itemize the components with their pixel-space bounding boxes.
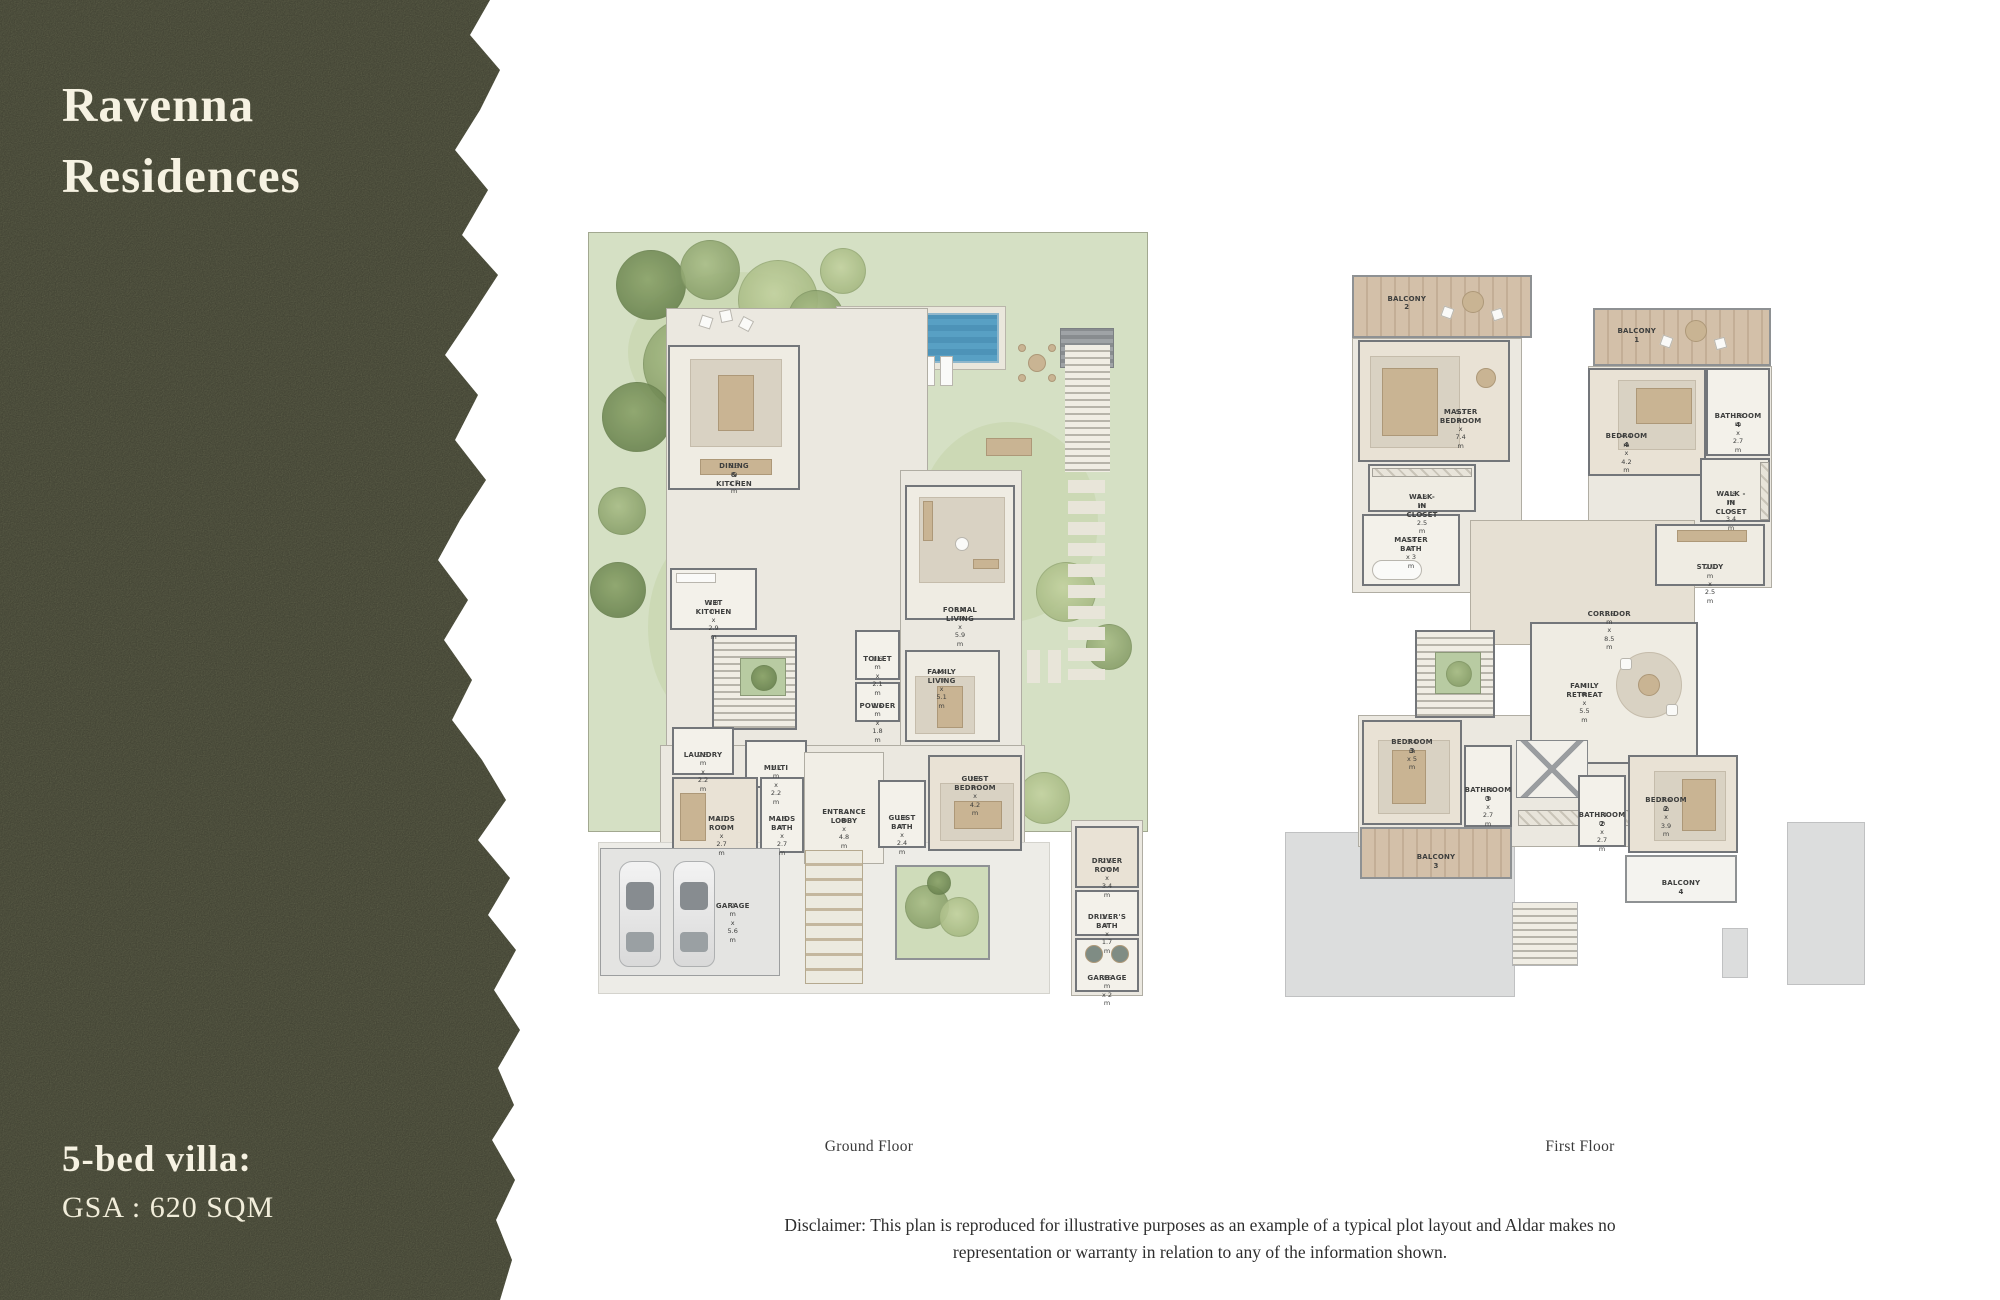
balcony-4: BALCONY 4 (1625, 855, 1737, 903)
room-dims: 5.3 m x 7 m (729, 462, 739, 496)
outdoor-chair (1018, 374, 1026, 382)
bin (1111, 945, 1129, 963)
disclaimer-line-1: Disclaimer: This plan is reproduced for … (500, 1212, 1900, 1239)
villa-type: 5-bed villa: (62, 1138, 274, 1181)
round-table (1638, 674, 1660, 696)
tree-icon (820, 248, 866, 294)
room-maids-bath: MAIDS BATH 1.5 m x 2.7 m (760, 777, 804, 853)
first-floor-plan: CORRIDOR 1.6 m x 8.5 m BALCONY 2 BALCONY… (1280, 270, 1880, 1000)
room-family-living: FAMILY LIVING 4.4 m x 5.1 m (905, 650, 1000, 742)
room-bedroom-3: BEDROOM 3 3.4 m x 5 m (1362, 720, 1462, 825)
outdoor-stairs (1512, 902, 1578, 966)
brochure-page: Ravenna Residences 5-bed villa: GSA : 62… (0, 0, 2000, 1300)
ground-floor-caption: Ground Floor (588, 1138, 1150, 1156)
disclaimer-line-2: representation or warranty in relation t… (500, 1239, 1900, 1266)
outdoor-sofa (986, 438, 1032, 456)
page-title: Ravenna Residences (62, 70, 301, 211)
stepping-stones (1068, 480, 1105, 680)
first-floor-caption: First Floor (1280, 1138, 1880, 1156)
room-master-bath: MASTER BATH 3.8 m x 3 m (1362, 514, 1460, 586)
balcony-table (1462, 291, 1484, 313)
villa-gsa: GSA : 620 SQM (62, 1191, 274, 1225)
courtyard-planter (895, 865, 990, 960)
balcony-chair (1440, 305, 1454, 319)
stair-planter (740, 658, 786, 696)
balcony-chair (1714, 337, 1727, 350)
outdoor-table (1028, 354, 1046, 372)
tree-icon (590, 562, 646, 618)
room-walkin-closet-master: WALK-IN CLOSET 3.8 m x 2.5 m (1368, 464, 1476, 512)
room-bathroom-3: BATHROOM 3 1.4 m x 2.7 m (1464, 745, 1512, 827)
paver-path (805, 850, 863, 984)
tree-icon (598, 487, 646, 535)
balcony-chair (1491, 308, 1505, 322)
outdoor-chair (1048, 374, 1056, 382)
car (619, 861, 661, 967)
room-walkin-closet-2: WALK - IN CLOSET 1.8 m x 3.4 m (1700, 458, 1770, 522)
roof-slab (1787, 822, 1865, 985)
room-entrance-lobby: ENTRANCE LOBBY 3.1 m x 4.8 m (804, 752, 884, 864)
tree-icon (680, 240, 740, 300)
armchair (1620, 658, 1632, 670)
garden-steps (1065, 345, 1110, 472)
room-bedroom-4: BEDROOM 4 4.4 m x 4.2 m (1588, 368, 1706, 476)
room-wet-kitchen: WET KITCHEN 3.8 m x 2.9 m (670, 568, 757, 630)
room-maids: MAIDS ROOM 3.7 m x 2.7 m (672, 777, 758, 853)
bed (1682, 779, 1716, 831)
room-toilet: TOILET 1.6 m x 2.1 m (855, 630, 900, 680)
armchair (1476, 368, 1496, 388)
room-guest-bedroom: GUEST BEDROOM 3.6 m x 4.2 m (928, 755, 1022, 851)
room-master-bedroom: MASTER BEDROOM 5.3 m x 7.4 m (1358, 340, 1510, 462)
stair-planter (1435, 652, 1481, 694)
bed (1636, 388, 1692, 424)
title-line-2: Residences (62, 141, 301, 212)
outdoor-chair (1048, 344, 1056, 352)
room-bathroom-4: BATHROOM 4 1.8 m x 2.7 m (1706, 368, 1770, 456)
balcony-table (1685, 320, 1707, 342)
balcony-3: BALCONY 3 (1360, 827, 1512, 879)
outdoor-chair (1018, 344, 1026, 352)
tree-icon (1018, 772, 1070, 824)
room-formal-living: FORMAL LIVING 6.4 m x 5.9 m (905, 485, 1015, 620)
car (673, 861, 715, 967)
ground-floor-plan: DINING & KITCHEN 5.3 m x 7 m WET KITCHEN… (588, 232, 1150, 1007)
room-bathroom-2: BATHROOM 2 1.4 m x 2.7 m (1578, 775, 1626, 847)
disclaimer: Disclaimer: This plan is reproduced for … (500, 1212, 1900, 1266)
balcony-1: BALCONY 1 (1593, 308, 1771, 366)
balcony-chair (1659, 334, 1673, 348)
desk (1677, 530, 1747, 542)
room-guest-bath: GUEST BATH 1.8 m x 2.4 m (878, 780, 926, 848)
dining-table (718, 375, 754, 431)
armchair (1666, 704, 1678, 716)
sofa (923, 501, 933, 541)
tree-icon (602, 382, 672, 452)
room-laundry: LAUNDRY 2.5 m x 2.2 m (672, 727, 734, 775)
sofa (973, 559, 999, 569)
roof-slab (1722, 928, 1748, 978)
room-bedroom-2: BEDROOM 2 3.6 m x 3.9 m (1628, 755, 1738, 853)
room-study: STUDY 2.9 m x 2.5 m (1655, 524, 1765, 586)
patio-chair (719, 309, 733, 323)
coffee-table (955, 537, 969, 551)
room-driver: DRIVER ROOM 2.5 m x 3.4 m (1075, 826, 1139, 888)
room-garage: GARAGE 7 m x 5.6 m (600, 848, 780, 976)
room-dining-kitchen: DINING & KITCHEN 5.3 m x 7 m (668, 345, 800, 490)
bed (1382, 368, 1438, 436)
sun-lounger (940, 356, 953, 386)
title-line-1: Ravenna (62, 70, 301, 141)
balcony-2: BALCONY 2 (1352, 275, 1532, 338)
bed (680, 793, 706, 841)
villa-summary: 5-bed villa: GSA : 620 SQM (62, 1138, 274, 1225)
bin (1085, 945, 1103, 963)
